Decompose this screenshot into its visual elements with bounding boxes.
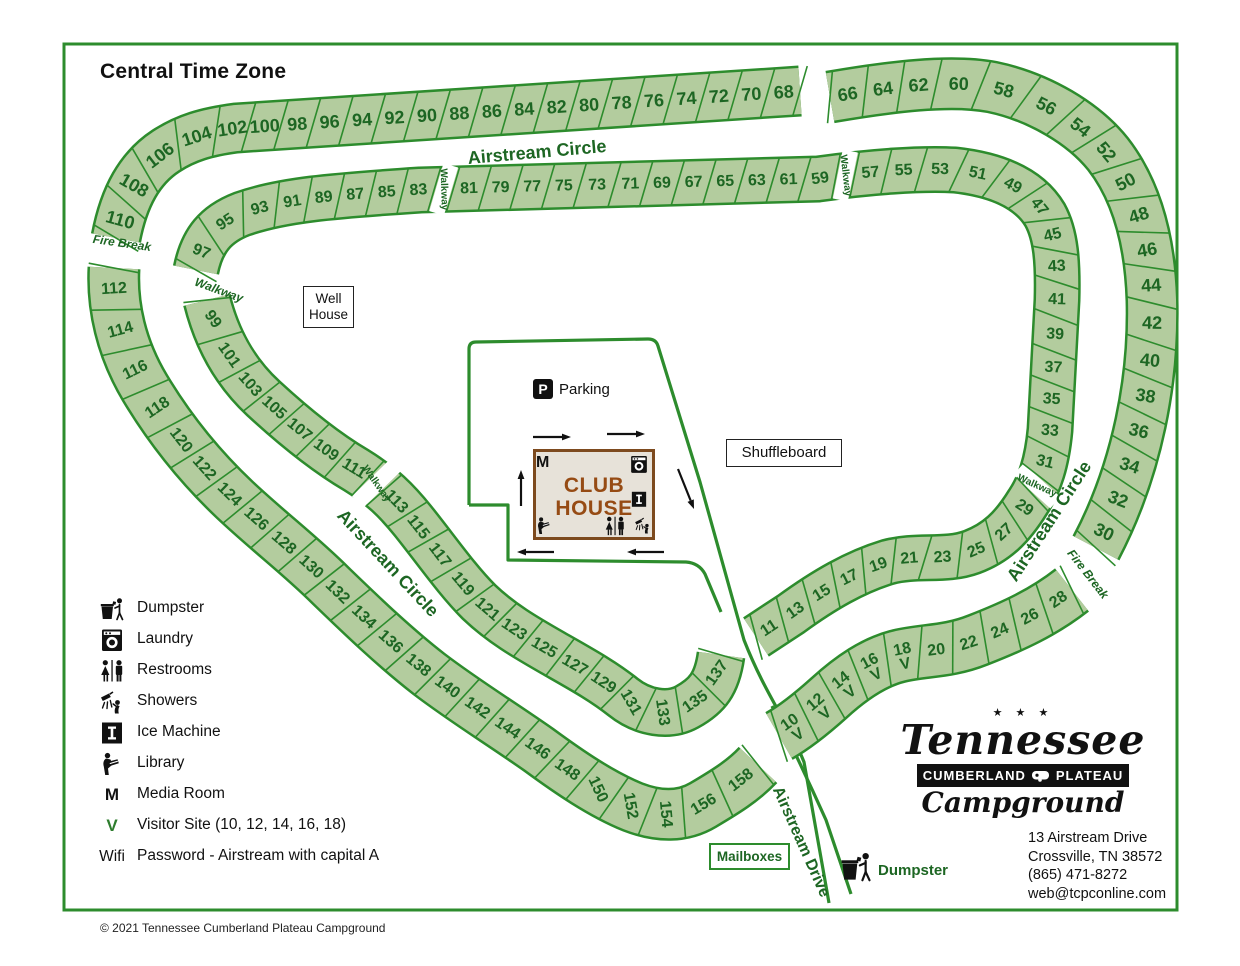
logo-name: Tennessee [898, 718, 1148, 762]
showers-icon [98, 689, 126, 715]
parking-icon: P [533, 379, 553, 399]
logo-banner-right: PLATEAU [1056, 768, 1123, 783]
restrooms-icon [98, 658, 126, 684]
site-68: 68 [773, 81, 794, 102]
trailer-icon [1031, 770, 1051, 782]
site-41: 41 [1048, 291, 1067, 309]
site-96: 96 [319, 111, 340, 132]
legend-label: Laundry [137, 630, 193, 648]
site-75: 75 [555, 177, 573, 194]
ice-machine-icon-wrap [629, 490, 649, 514]
site-59: 59 [810, 169, 830, 188]
site-40: 40 [1139, 349, 1161, 371]
media-room-icon: M [536, 454, 549, 472]
address-line: 13 Airstream Drive [1028, 829, 1166, 848]
site-divider [90, 309, 141, 310]
direction-arrow [607, 431, 645, 438]
site-46: 46 [1136, 238, 1159, 261]
ice-machine-icon [629, 490, 649, 509]
site-100: 100 [249, 115, 280, 137]
site-76: 76 [643, 90, 664, 111]
showers-icon [633, 516, 653, 535]
page-title: Central Time Zone [100, 60, 286, 84]
legend-icon-laundry [94, 624, 130, 656]
site-90: 90 [416, 105, 437, 126]
showers-icon-wrap [633, 516, 653, 540]
site-79: 79 [492, 179, 510, 196]
direction-arrow [518, 470, 525, 506]
fire-break-left: Fire Break [92, 232, 153, 254]
site-71: 71 [621, 175, 639, 192]
site-83: 83 [409, 181, 428, 199]
parking-label: Parking [559, 381, 610, 398]
legend-label: Library [137, 754, 184, 772]
address-block: 13 Airstream DriveCrossville, TN 38572(8… [1028, 829, 1166, 903]
legend-icon-text-wifi: Wifi [94, 841, 130, 873]
campground-logo: ★ ★ ★ Tennessee CUMBERLAND PLATEAU Campg… [898, 708, 1148, 819]
site-21: 21 [900, 549, 919, 567]
site-60: 60 [948, 74, 968, 94]
legend-icon-library [94, 748, 130, 780]
site-154: 154 [656, 800, 675, 828]
site-72: 72 [708, 86, 729, 107]
site-37: 37 [1044, 359, 1063, 377]
logo-banner: CUMBERLAND PLATEAU [917, 764, 1129, 787]
site-63: 63 [748, 172, 766, 189]
site-20: 20 [926, 641, 946, 660]
legend-label: Ice Machine [137, 723, 221, 741]
site-78: 78 [611, 92, 632, 113]
legend-icon-letter-m: M [94, 779, 130, 811]
direction-arrow [627, 549, 664, 556]
copyright: © 2021 Tennessee Cumberland Plateau Camp… [100, 921, 385, 935]
dumpster-icon [98, 596, 126, 622]
site-65: 65 [716, 173, 734, 190]
site-74: 74 [676, 88, 697, 109]
dumpster-icon [838, 850, 874, 883]
site-62: 62 [908, 74, 930, 95]
site-43: 43 [1048, 257, 1067, 275]
legend-icon-letter-v: V [94, 810, 130, 842]
site-39: 39 [1046, 325, 1065, 343]
legend-label: Dumpster [137, 599, 204, 617]
laundry-icon [98, 627, 126, 653]
walkway-label: Walkway [438, 168, 450, 211]
site-98: 98 [287, 113, 308, 134]
well-house-box: Well House [303, 286, 354, 328]
logo-sub: Campground [898, 787, 1148, 819]
site-66: 66 [836, 83, 859, 106]
legend-icon-dumpster [94, 593, 130, 625]
legend-icon-showers [94, 686, 130, 718]
site-divider [243, 190, 244, 237]
address-line: Crossville, TN 38572 [1028, 848, 1166, 867]
site-69: 69 [653, 175, 671, 192]
site-80: 80 [578, 94, 599, 115]
legend-label: Restrooms [137, 661, 212, 679]
legend-icon-ice-machine [94, 717, 130, 749]
site-81: 81 [460, 180, 478, 197]
restrooms-icon-wrap [603, 515, 627, 542]
dumpster-label: Dumpster [878, 862, 948, 879]
site-88: 88 [449, 103, 470, 124]
site-33: 33 [1040, 422, 1059, 441]
site-35: 35 [1042, 390, 1061, 408]
dumpster-icon-wrap [838, 850, 874, 888]
campground-map: 1101081061041021009896949290888684828078… [0, 0, 1240, 966]
logo-banner-left: CUMBERLAND [923, 768, 1026, 783]
site-94: 94 [351, 109, 372, 130]
well-house-line2: House [309, 307, 348, 323]
site-67: 67 [685, 174, 703, 191]
laundry-icon [628, 454, 650, 474]
site-84: 84 [514, 98, 535, 119]
band-outer-right: 66646260585654525048464442403836343230 [828, 58, 1178, 565]
legend-label: Visitor Site (10, 12, 14, 16, 18) [137, 816, 346, 834]
direction-arrow [517, 549, 554, 556]
laundry-icon-wrap [628, 454, 650, 479]
site-91: 91 [282, 192, 302, 212]
site-85: 85 [377, 183, 396, 201]
site-87: 87 [346, 185, 365, 203]
site-64: 64 [872, 78, 894, 100]
library-icon [98, 751, 126, 777]
restrooms-icon [603, 515, 627, 537]
site-42: 42 [1142, 313, 1162, 333]
site-23: 23 [933, 548, 952, 566]
site-89: 89 [314, 188, 334, 207]
site-57: 57 [861, 164, 880, 183]
site-112: 112 [101, 280, 128, 298]
site-70: 70 [741, 84, 762, 105]
shuffleboard-box: Shuffleboard [726, 439, 842, 467]
site-92: 92 [384, 107, 405, 128]
site-55: 55 [894, 161, 913, 179]
site-77: 77 [523, 178, 541, 195]
site-102: 102 [216, 116, 249, 140]
legend-label: Showers [137, 692, 197, 710]
legend-label: Password - Airstream with capital A [137, 847, 379, 865]
site-53: 53 [931, 161, 949, 178]
mailboxes-box: Mailboxes [709, 843, 790, 870]
address-line: (865) 471-8272 [1028, 866, 1166, 885]
legend-icon-restrooms [94, 655, 130, 687]
direction-arrow [678, 469, 694, 509]
address-line: web@tcpconline.com [1028, 885, 1166, 904]
site-82: 82 [546, 96, 567, 117]
library-icon-wrap [534, 516, 555, 541]
site-38: 38 [1134, 384, 1157, 407]
direction-arrow [533, 434, 571, 441]
legend-label: Media Room [137, 785, 225, 803]
well-house-line1: Well [315, 291, 341, 307]
site-61: 61 [779, 171, 797, 188]
library-icon [534, 516, 555, 536]
site-73: 73 [588, 176, 606, 193]
site-44: 44 [1141, 275, 1162, 296]
site-86: 86 [481, 101, 502, 122]
ice-machine-icon [98, 720, 126, 746]
